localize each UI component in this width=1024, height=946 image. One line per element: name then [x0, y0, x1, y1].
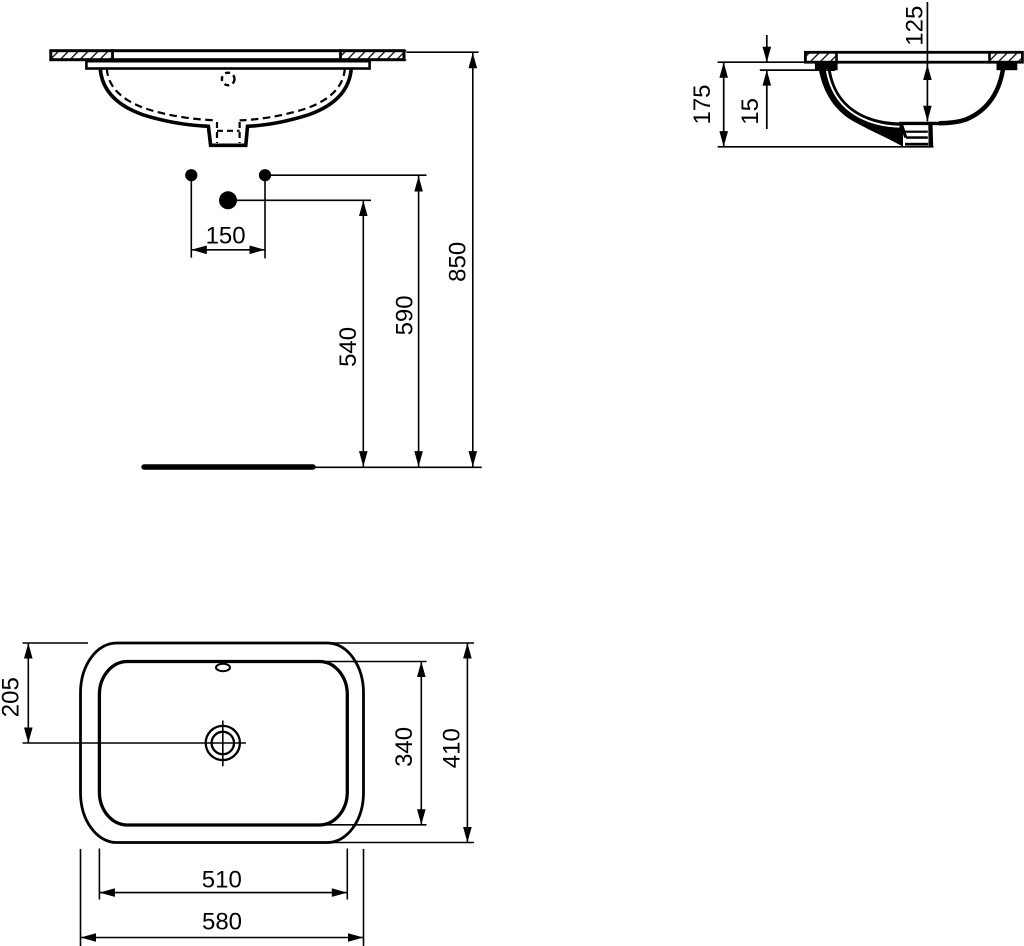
svg-text:510: 510 — [202, 867, 242, 894]
svg-text:850: 850 — [444, 242, 471, 282]
svg-text:410: 410 — [439, 728, 466, 768]
svg-text:205: 205 — [0, 677, 25, 717]
svg-text:540: 540 — [335, 327, 362, 367]
svg-text:340: 340 — [391, 727, 418, 767]
svg-text:175: 175 — [689, 84, 716, 124]
svg-text:125: 125 — [902, 6, 929, 46]
svg-text:15: 15 — [737, 98, 764, 125]
svg-text:580: 580 — [202, 909, 242, 936]
svg-text:150: 150 — [206, 223, 246, 250]
svg-text:590: 590 — [391, 295, 418, 335]
